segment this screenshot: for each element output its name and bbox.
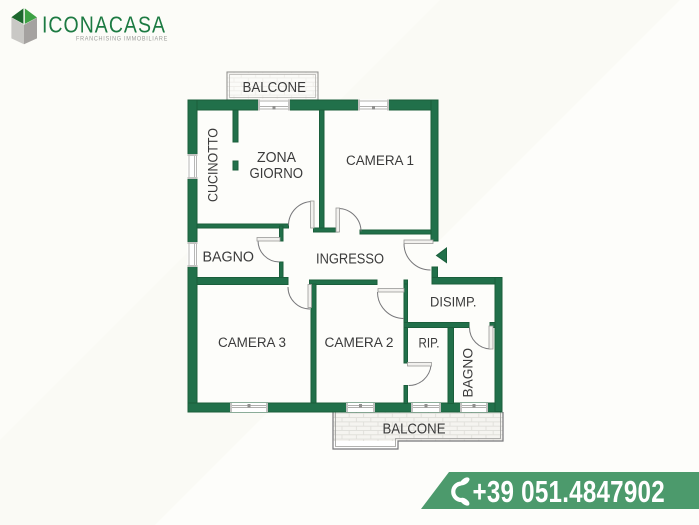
svg-text:BAGNO: BAGNO <box>460 348 476 398</box>
svg-text:+39 051.4847902: +39 051.4847902 <box>473 474 665 508</box>
svg-text:CAMERA 2: CAMERA 2 <box>325 335 394 351</box>
svg-text:BALCONE: BALCONE <box>243 79 307 96</box>
svg-text:ICONACASA: ICONACASA <box>42 12 166 38</box>
svg-text:RIP.: RIP. <box>419 336 440 351</box>
svg-text:DISIMP.: DISIMP. <box>430 295 477 310</box>
svg-text:BALCONE: BALCONE <box>383 422 446 438</box>
svg-text:FRANCHISING IMMOBILIARE: FRANCHISING IMMOBILIARE <box>76 35 168 42</box>
svg-text:GIORNO: GIORNO <box>250 165 304 182</box>
svg-text:BAGNO: BAGNO <box>203 250 255 266</box>
svg-text:INGRESSO: INGRESSO <box>316 252 384 268</box>
svg-text:CAMERA 1: CAMERA 1 <box>346 153 414 169</box>
svg-text:CAMERA 3: CAMERA 3 <box>218 335 286 351</box>
svg-text:CUCINOTTO: CUCINOTTO <box>205 128 221 202</box>
svg-text:ZONA: ZONA <box>257 149 296 166</box>
